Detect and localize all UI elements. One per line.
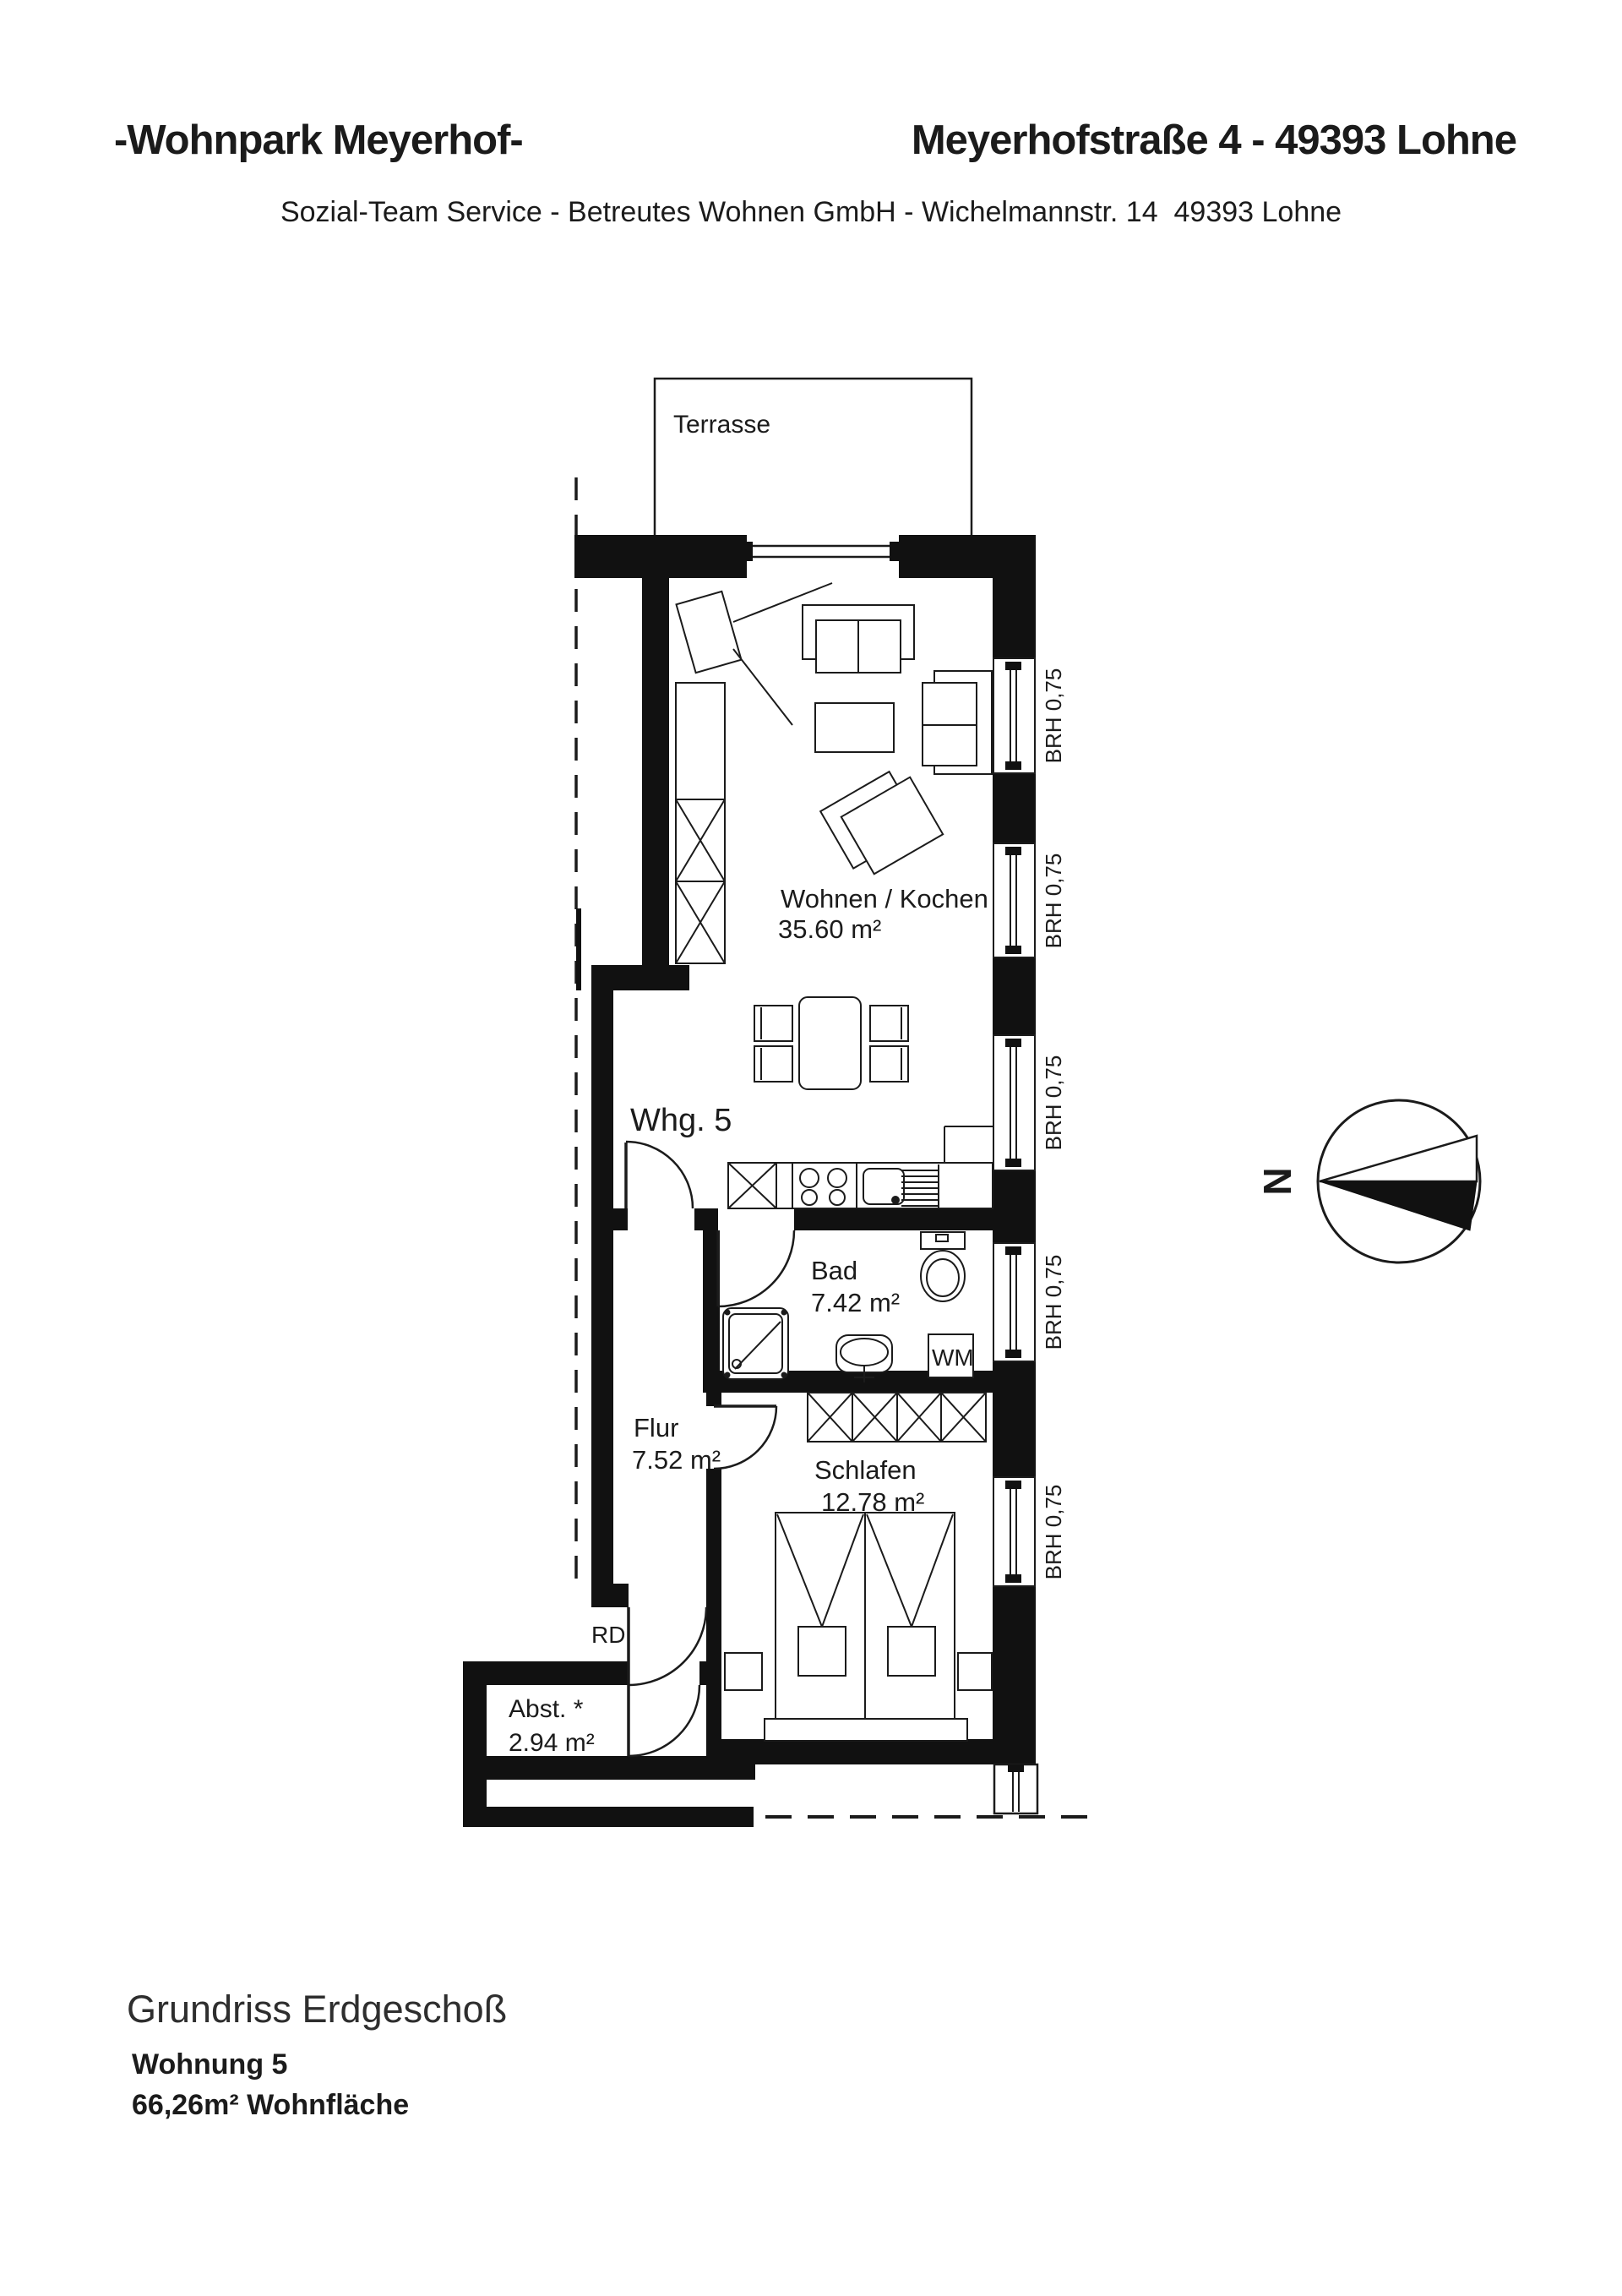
window-label-1: BRH 0,75 (1041, 668, 1066, 764)
bedroom-door (714, 1406, 776, 1469)
bath-area: 7.42 m² (811, 1288, 900, 1317)
bottom-wall-window-stub (994, 1764, 1037, 1813)
sofa-right (923, 671, 992, 774)
coffee-table (815, 703, 894, 752)
floor-plan-page: -Wohnpark Meyerhof- Meyerhofstraße 4 - 4… (0, 0, 1622, 2296)
kitchen-counter (728, 1126, 993, 1208)
compass-needle-white (1320, 1136, 1477, 1181)
armchair (820, 764, 943, 881)
tall-cabinet (676, 683, 725, 963)
rd-label: RD (591, 1622, 625, 1648)
window-label-2: BRH 0,75 (1041, 854, 1066, 949)
entry-door (626, 1142, 693, 1208)
nightstand-right (958, 1653, 992, 1690)
bath-door (718, 1230, 794, 1306)
rd-door (629, 1607, 706, 1685)
sofa-top (803, 605, 914, 673)
dining-set (754, 997, 908, 1089)
floor-plan-drawing: Terrasse (0, 0, 1622, 2296)
washing-machine-label: WM (932, 1344, 974, 1371)
bedroom-wardrobe (808, 1393, 986, 1442)
hall-area: 7.52 m² (632, 1445, 721, 1475)
bedroom-area: 12.78 m² (821, 1487, 924, 1517)
storage-area: 2.94 m² (509, 1729, 595, 1757)
tv-unit (677, 592, 742, 673)
compass-north-label: N (1255, 1167, 1299, 1195)
drawing-title: Grundriss Erdgeschoß (127, 1988, 507, 2031)
storage-door (629, 1685, 699, 1756)
double-bed (765, 1513, 967, 1741)
window-label-5: BRH 0,75 (1041, 1485, 1066, 1580)
window-label-4: BRH 0,75 (1041, 1255, 1066, 1350)
living-room-furniture (676, 583, 992, 1089)
living-room-name: Wohnen / Kochen (781, 884, 988, 913)
shower (723, 1308, 788, 1379)
unit-label: Wohnung 5 (132, 2048, 287, 2081)
terrace: Terrasse (655, 379, 972, 537)
window-label-3: BRH 0,75 (1041, 1055, 1066, 1151)
bedroom-name: Schlafen (814, 1455, 917, 1485)
storage-name: Abst. * (509, 1695, 584, 1723)
toilet (921, 1232, 965, 1301)
apartment-number-label: Whg. 5 (630, 1103, 732, 1138)
bath-name: Bad (811, 1256, 857, 1285)
hall-name: Flur (634, 1413, 678, 1442)
living-room-area: 35.60 m² (778, 914, 881, 944)
living-area-label: 66,26m² Wohnfläche (132, 2089, 409, 2122)
terrace-label: Terrasse (673, 411, 770, 439)
nightstand-left (725, 1653, 762, 1690)
compass-needle-black (1320, 1181, 1477, 1230)
bedroom-furniture (725, 1393, 992, 1741)
north-compass: N (1255, 1100, 1480, 1263)
